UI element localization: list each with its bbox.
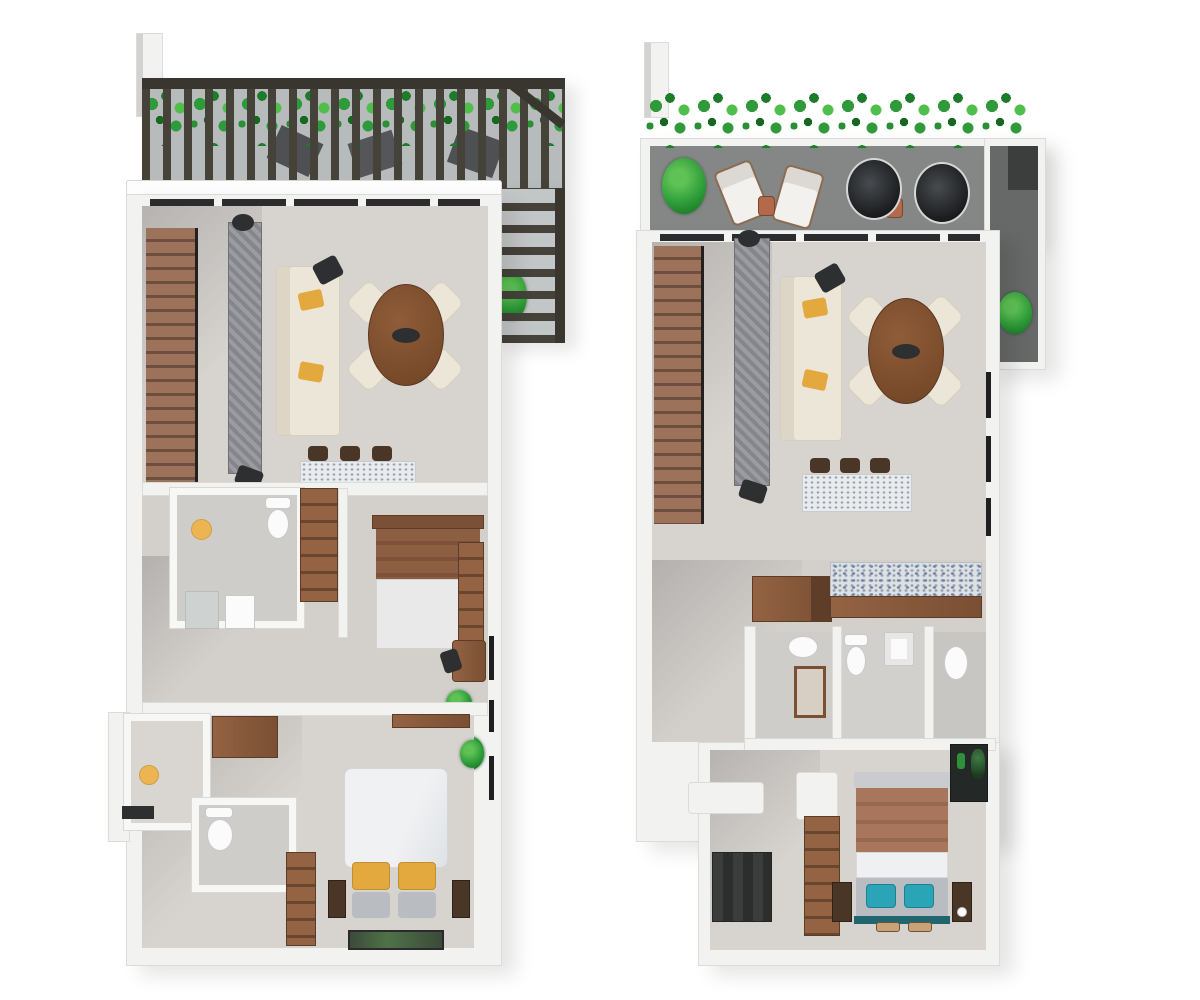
plan-b-papasan-chair [846,158,902,220]
plan-a-master-pillow-gray [352,892,390,918]
plan-a-sofa-pillow [297,289,324,312]
plan-a-master-plant [460,740,484,768]
plan-b-table-centerpiece [892,344,920,359]
plan-b-rack-vine [971,749,985,779]
plan-a-bedroom1-shelf [458,542,484,646]
plan-b-sink2 [884,632,914,666]
plan-b-bar-stool [840,458,860,473]
plan-b-lounge-chair [771,164,825,231]
plan-b-nightstand [952,882,972,922]
plan-a-pergola-slats [142,78,565,188]
plan-a-bathroom1 [170,488,304,628]
plan-b-nightstand-vase [957,907,967,917]
plan-a-master-duvet [344,768,448,868]
plan-b-window [986,372,991,418]
plan-b-sofa-pillow [802,297,829,319]
plan-b-sliding-door [660,234,980,241]
plan-b-wall-header [688,782,764,814]
plan-a-bar-stool [308,446,328,461]
plan-a-wall-bedroom1 [338,488,348,638]
plan-a-table-centerpiece [392,328,420,343]
plan-b-side-table [758,196,775,216]
plan-a-window [489,700,494,732]
plan-b-stairs [654,246,704,524]
plan-b-sofa [780,276,842,441]
plan-a-kitchen-island [300,461,416,484]
plan-b-tv-console [734,238,770,486]
plan-b-wall-header [796,772,838,820]
plan-b-lounge-chair [713,159,772,228]
plan-a-nightstand [328,880,346,918]
plan-a [0,0,600,1000]
plan-a-pergola-roof [142,78,565,188]
plan-a-utility-sink [139,765,159,785]
plan-b-side-terrace-plant [998,292,1032,334]
plan-b-bed-blanket [856,788,948,852]
plan-a-tall-closet [286,852,316,946]
plan-a-wardrobe [300,488,338,602]
plan-b-bed [854,772,950,924]
plan-a-stairs [146,228,198,520]
plan-a-pergola-side-rail [555,188,565,343]
plan-a-master-pillow-gray [398,892,436,918]
plan-a-utility-threshold [122,806,154,819]
plan-a-bar-stool [372,446,392,461]
plan-a-nightstand [452,880,470,918]
plan-a-toilet2-tank [205,807,233,818]
plan-a-round-sink [191,519,212,540]
plan-b-hedge [646,88,1030,148]
plan-a-master-pillow-yellow [352,862,390,890]
plan-b-terrace-plant [662,158,706,214]
plan-a-toilet-bowl [267,509,289,539]
plan-a-master-shelf [392,714,470,728]
floor-plan-render [0,0,1200,1000]
plan-a-hall-wardrobe [212,716,278,758]
plan-b-papasan-chair [914,162,970,224]
plan-b-bath-wall [832,626,842,744]
plan-b-pillow-teal [904,884,934,908]
plan-a-bathroom2 [192,798,296,892]
plan-b-bed-sheet-fold [856,852,948,878]
plan-a-master-bed [344,768,448,936]
plan-b-closet-niche [712,852,772,922]
plan-b-kitchen-island [802,474,912,512]
plan-b-shower-basin [944,646,968,680]
plan-b-window [986,436,991,482]
plan-b-toilet1 [788,636,818,658]
plan-a-sofa-pillow [298,361,325,383]
plan-a-window [489,756,494,800]
plan-b-shower-tray1 [794,666,826,718]
plan-b-toilet2-bowl [846,646,866,676]
plan-b-bar-stool [810,458,830,473]
plan-a-speaker [232,214,254,231]
plan-b-side-terrace-corner [1008,146,1038,190]
plan-a-bed1-headboard [372,515,484,529]
plan-b-sofa-pillow [801,369,828,392]
plan-a-pergola-side [492,188,565,343]
plan-a-shower-tray [185,591,219,629]
plan-b-bath-wall [924,626,934,744]
plan-b-bath-wall [744,626,756,750]
plan-b-terrace-floor [650,146,1022,234]
plan-b-window [986,498,991,536]
plan-a-window [489,636,494,680]
plan-a-bed-bench [348,930,444,950]
plan-b-wall-rack [950,744,988,802]
plan-b-bar-stool [870,458,890,473]
plan-b-nightstand [832,882,852,922]
plan-a-bar-stool [340,446,360,461]
plan-b-wine-bottle [957,753,965,769]
plan-a-toilet2-bowl [207,819,233,851]
plan-a-sofa [276,266,340,436]
plan-b-slipper [908,922,932,932]
plan-b-bed-head [854,772,950,788]
plan-a-sliding-door [150,199,480,206]
plan-a-vanity [225,595,255,629]
plan-a-tv-console [228,222,262,474]
plan-a-toilet-tank [265,497,291,509]
plan-b-bed-frame-end [854,916,950,924]
plan-b-counter-top-front [830,596,982,618]
plan-b-toilet2-tank [844,634,868,646]
plan-b [600,0,1200,1000]
plan-b-counter-top [830,562,982,598]
plan-a-master-pillow-yellow [398,862,436,890]
plan-b-speaker [738,230,760,247]
plan-b-slipper [876,922,900,932]
plan-b-counter-left [752,576,832,622]
plan-b-pillow-teal [866,884,896,908]
